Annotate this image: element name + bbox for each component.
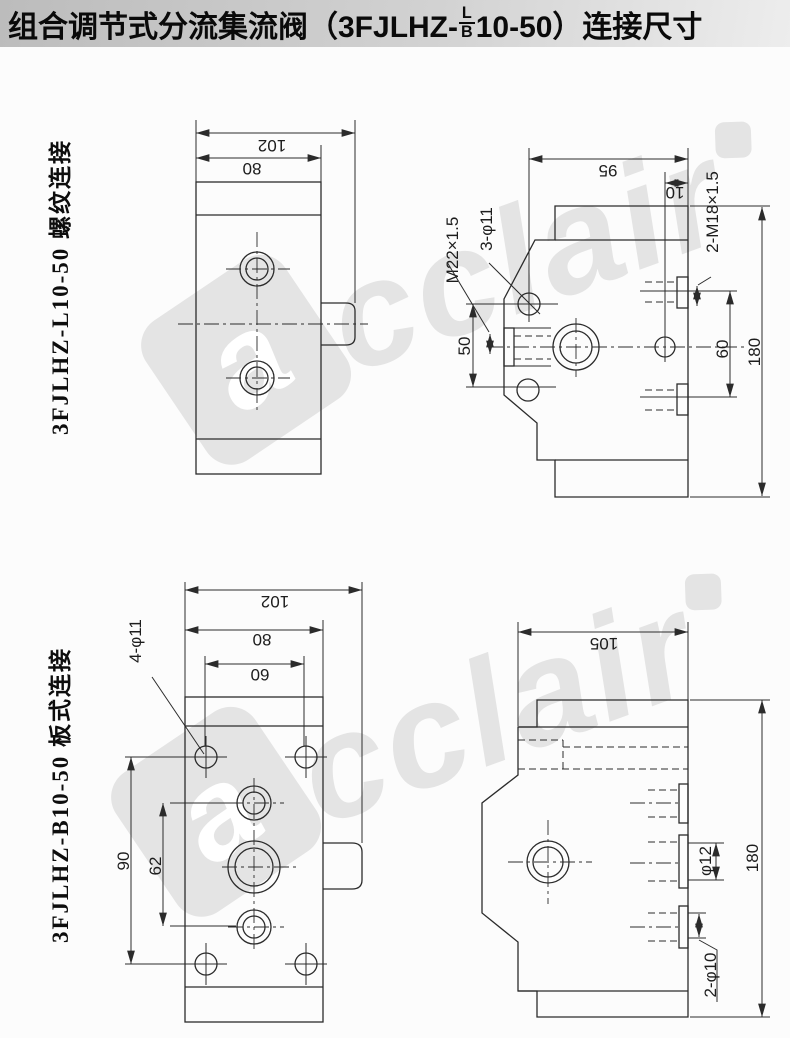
dim-port-mid: φ12 xyxy=(696,846,715,876)
threaded-front-view: 102 80 xyxy=(178,120,368,474)
valve-connection-drawing: 3FJLHZ-L10-50 螺纹连接 102 80 xyxy=(0,0,790,1038)
plate-side-view: 105 φ12 2-φ10 180 xyxy=(482,622,770,1017)
dim-total-width: 102 xyxy=(261,592,289,611)
plate-front-view: 102 80 60 xyxy=(114,582,362,1022)
port-boss xyxy=(679,906,688,948)
dim-depth: 95 xyxy=(599,161,618,180)
section-label-threaded: 3FJLHZ-L10-50 螺纹连接 xyxy=(47,139,73,435)
label-ports-right: 2-M18×1.5 xyxy=(703,171,722,253)
section-label-plate: 3FJLHZ-B10-50 板式连接 xyxy=(47,647,73,943)
label-ports: 2-φ10 xyxy=(701,952,720,997)
title-bar: 组合调节式分流集流阀（3FJLHZ-LB10-50）连接尺寸 xyxy=(0,0,790,47)
threaded-side-view: 95 10 50 60 180 M22×1.5 3-φ11 2-M18×1.5 xyxy=(443,148,770,497)
dim-port-offset: 10 xyxy=(666,183,685,202)
page-title-suffix: 10-50）连接尺寸 xyxy=(476,2,703,46)
body-outline xyxy=(504,206,688,497)
port-boss-right xyxy=(677,384,688,415)
title-fraction: LB xyxy=(459,5,475,39)
label-port-left: M22×1.5 xyxy=(443,217,462,284)
dim-total-width: 102 xyxy=(258,136,286,155)
title-fraction-denominator: B xyxy=(459,24,475,40)
mount-hole xyxy=(517,379,539,401)
page-title-prefix: 组合调节式分流集流阀（3FJLHZ- xyxy=(8,2,458,46)
port-boss-right xyxy=(677,277,688,308)
body-outline xyxy=(482,700,688,1017)
port-boss xyxy=(679,835,688,888)
dim-height: 180 xyxy=(743,844,762,872)
mount-holes xyxy=(185,736,327,985)
dim-height: 180 xyxy=(745,338,764,366)
dim-body-width: 80 xyxy=(243,159,262,178)
side-knob xyxy=(323,843,362,889)
dim-hole-spacing: 50 xyxy=(455,337,474,356)
dim-hole-spacing-h: 60 xyxy=(251,665,270,684)
label-mount-holes: 3-φ11 xyxy=(477,207,496,251)
title-fraction-numerator: L xyxy=(459,5,475,23)
dim-port-spacing-v: 62 xyxy=(146,857,165,876)
dim-body-width: 80 xyxy=(253,630,272,649)
port-boss xyxy=(679,784,688,823)
page: acclair acclair 3FJLHZ-L10-50 螺纹连接 102 xyxy=(0,0,790,1038)
label-mount-holes: 4-φ11 xyxy=(126,619,145,663)
dim-hole-spacing-v: 90 xyxy=(114,852,133,871)
body-outline xyxy=(196,182,321,474)
dim-port-spacing: 60 xyxy=(713,340,732,359)
dim-depth: 105 xyxy=(590,634,618,653)
